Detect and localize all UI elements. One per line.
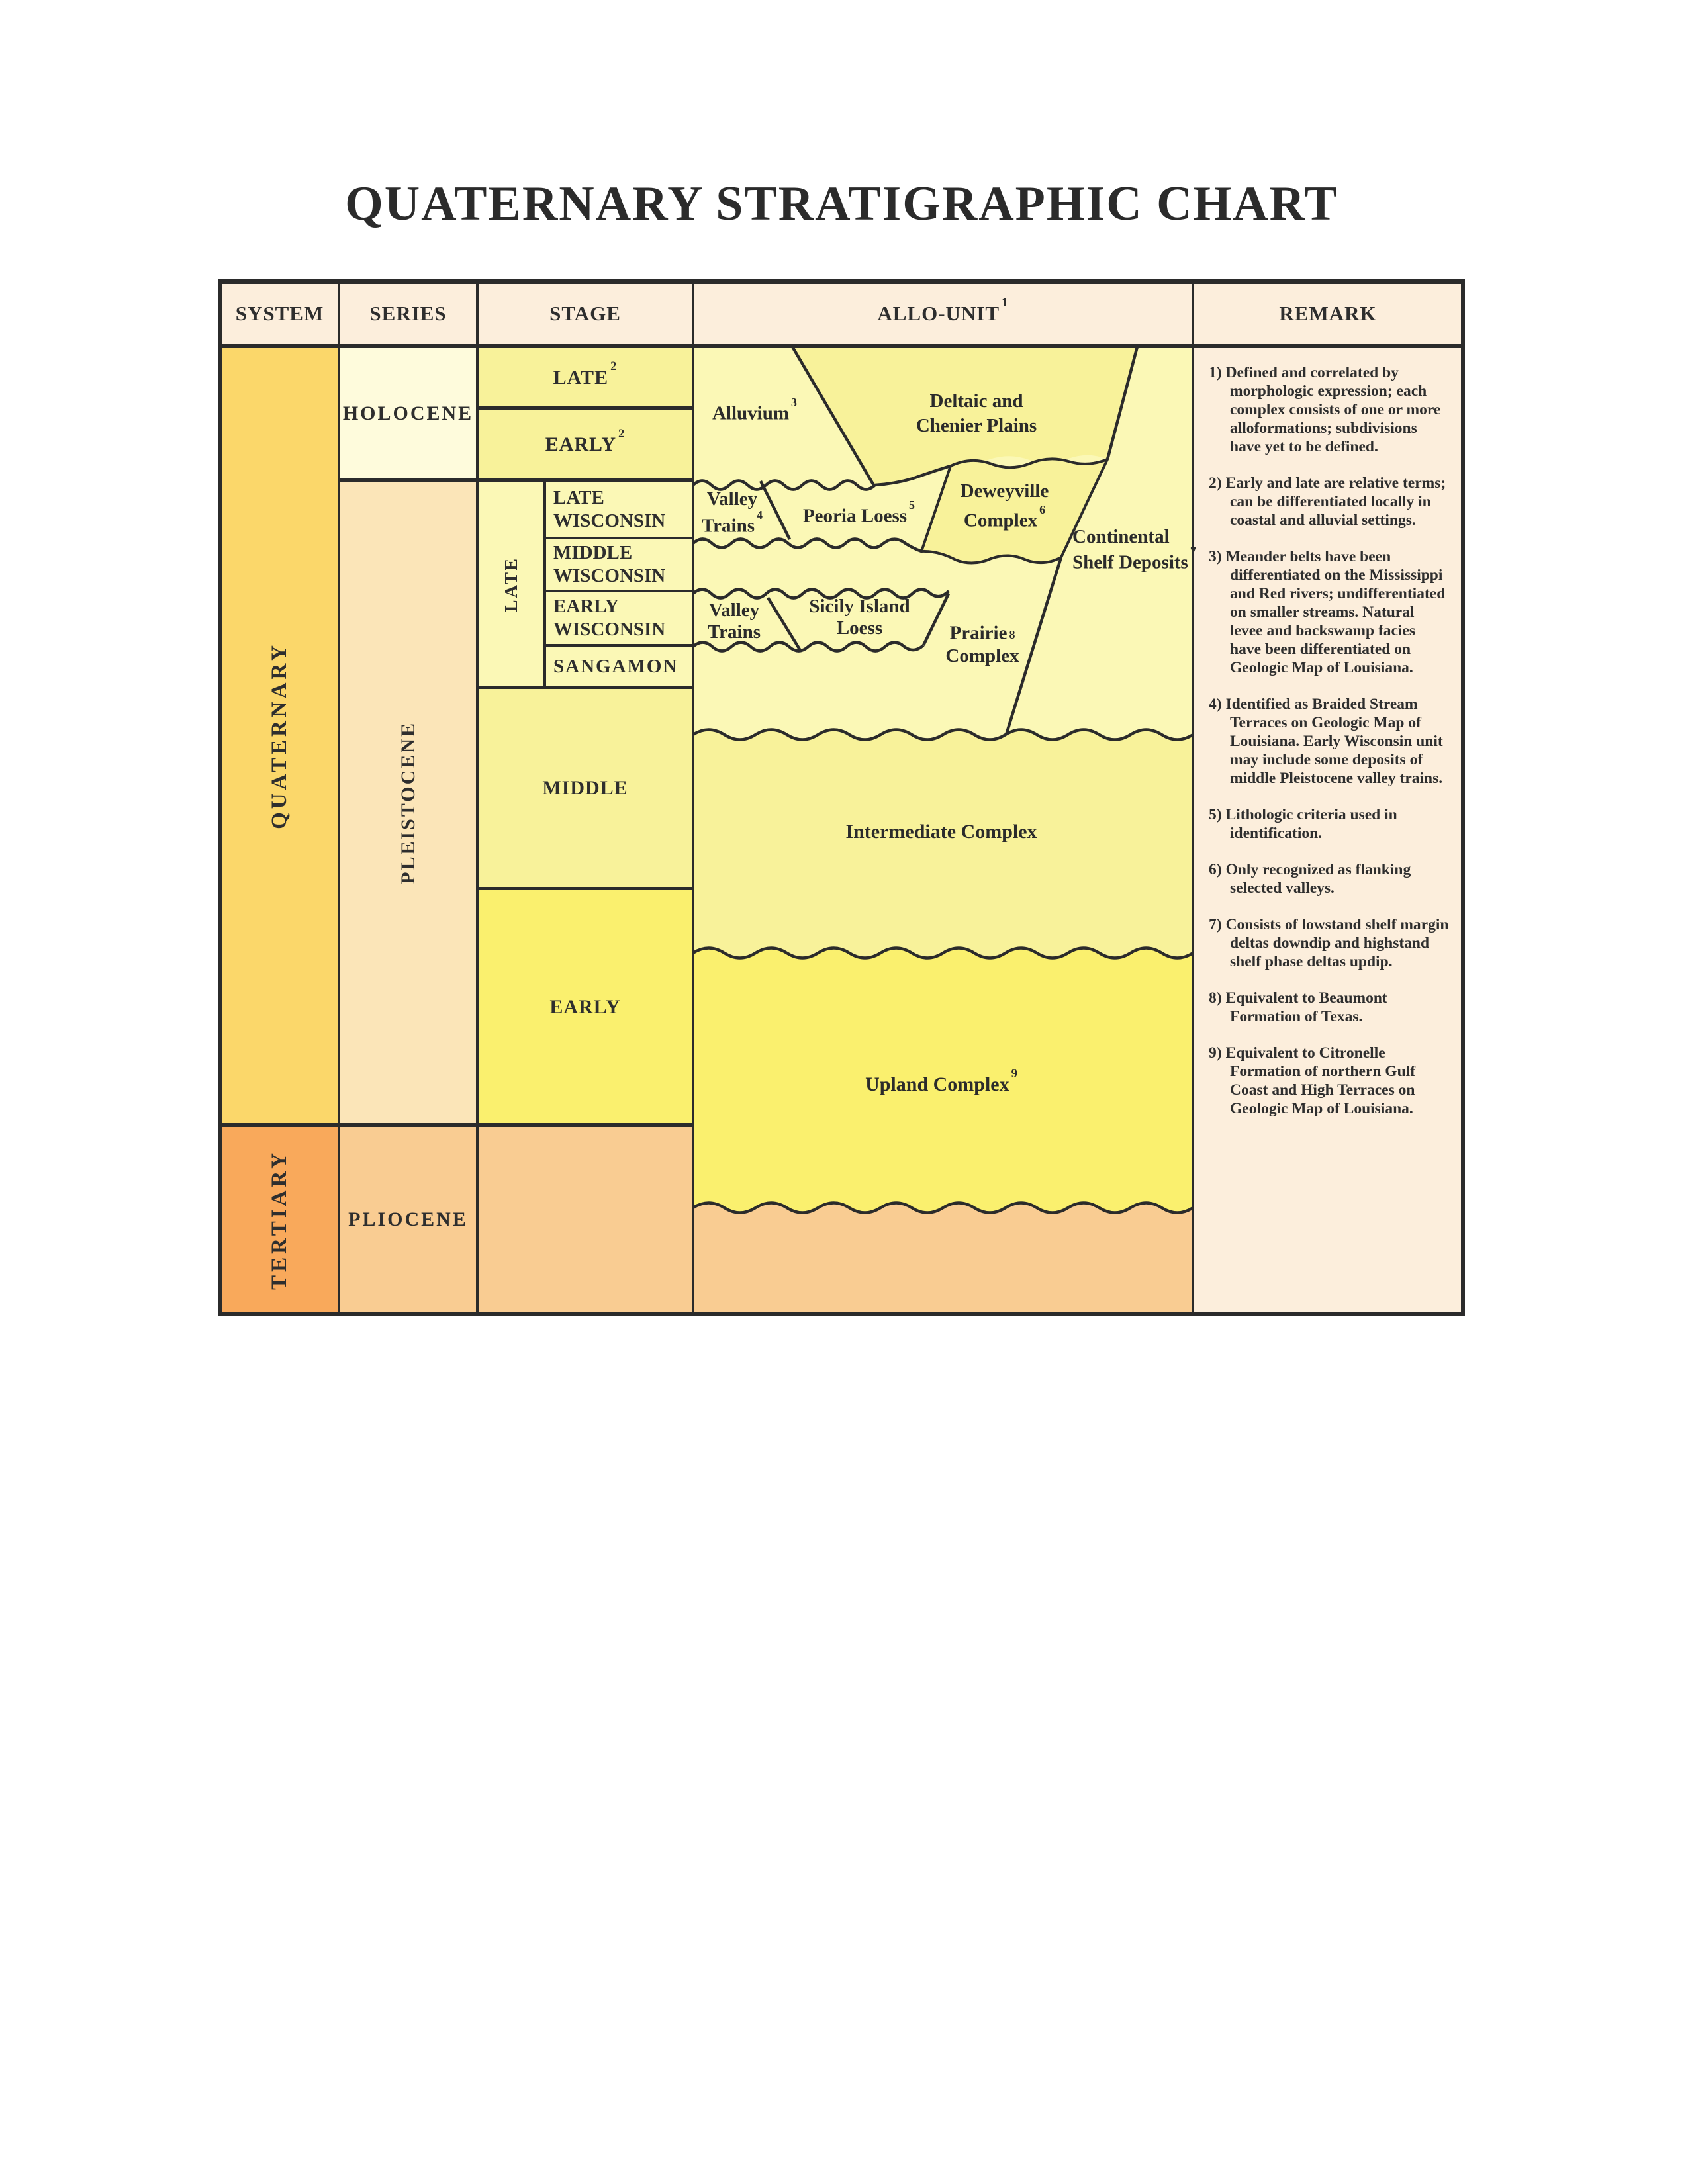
header-system: SYSTEM — [220, 281, 339, 346]
header-stage: STAGE — [477, 281, 693, 346]
stage-late-holocene-label: LATE2 — [553, 366, 618, 389]
stage-late-wisconsin-label: LATE WISCONSIN — [553, 486, 693, 533]
stage-allo-divider — [692, 281, 694, 1314]
remark-5: 5)Lithologic criteria used in identifica… — [1209, 805, 1450, 842]
stage-middle-wisconsin-label: MIDDLE WISCONSIN — [553, 541, 693, 588]
table-top-border — [218, 279, 1465, 284]
series-holocene-label: HOLOCENE — [343, 402, 473, 425]
holocene-pleistocene-divider — [339, 478, 693, 482]
stage-early-holocene-cell: EARLY2 — [477, 408, 693, 480]
stage-early-wisconsin-cell: EARLY WISCONSIN — [545, 591, 693, 645]
valley-trains-1-label: Valley Trains4 — [695, 488, 769, 537]
stage-late-holocene-cell: LATE2 — [477, 346, 693, 408]
alluvium-label: Alluvium3 — [695, 397, 814, 425]
system-tertiary-cell: TERTIARY — [220, 1125, 339, 1314]
remark-7: 7)Consists of lowstand shelf margin delt… — [1209, 915, 1450, 971]
system-series-divider — [338, 281, 340, 1314]
stage-sangamon-cell: SANGAMON — [545, 645, 693, 688]
remark-9: 9)Equivalent to Citronelle Formation of … — [1209, 1044, 1450, 1118]
stage-pliocene-empty-cell — [477, 1125, 693, 1314]
quaternary-stratigraphic-chart-page: QUATERNARY STRATIGRAPHIC CHART QUATERNAR… — [0, 0, 1688, 2184]
header-remark: REMARK — [1193, 281, 1463, 346]
series-pliocene-cell: PLIOCENE — [339, 1125, 477, 1314]
deweyville-complex-label: Deweyville Complex6 — [927, 479, 1082, 533]
stage-early-holocene-label: EARLY2 — [545, 433, 626, 456]
middle-early-divider — [477, 887, 693, 890]
remark-8: 8)Equivalent to Beaumont Formation of Te… — [1209, 989, 1450, 1026]
sangamon-middle-divider — [477, 686, 693, 689]
sicily-island-loess-label: Sicily Island Loess — [792, 596, 927, 639]
series-pleistocene-cell: PLEISTOCENE — [339, 480, 477, 1125]
remark-6: 6)Only recognized as flanking selected v… — [1209, 860, 1450, 897]
late-middle-wisconsin-divider — [545, 537, 693, 539]
pliocene-allo-region — [693, 1203, 1193, 1314]
stage-late-group-label: LATE — [501, 557, 522, 612]
remark-3: 3)Meander belts have been differentiated… — [1209, 547, 1450, 677]
stage-late-wisconsin-cell: LATE WISCONSIN — [545, 480, 693, 538]
late-subcolumn-divider — [543, 480, 546, 688]
deltaic-chenier-label: Deltaic and Chenier Plains — [897, 389, 1056, 438]
stage-early-wisconsin-label: EARLY WISCONSIN — [553, 595, 693, 641]
system-tertiary-label: TERTIARY — [267, 1150, 292, 1290]
remark-2: 2)Early and late are relative terms; can… — [1209, 474, 1450, 529]
valley-trains-2-label: Valley Trains — [695, 600, 773, 643]
series-pliocene-label: PLIOCENE — [348, 1208, 468, 1231]
intermediate-complex-region — [693, 730, 1193, 958]
series-stage-divider — [476, 281, 479, 1314]
allo-remark-divider — [1192, 281, 1194, 1314]
page-title: QUATERNARY STRATIGRAPHIC CHART — [220, 176, 1463, 232]
prairie-complex-label: Prairie8 Complex — [930, 617, 1035, 667]
remarks-column: 1)Defined and correlated by morphologic … — [1193, 346, 1463, 1314]
header-bottom-border — [220, 344, 1463, 348]
stage-middle-cell: MIDDLE — [477, 688, 693, 889]
series-pleistocene-label: PLEISTOCENE — [397, 721, 420, 884]
early-wisconsin-sangamon-divider — [545, 644, 693, 647]
stage-sangamon-label: SANGAMON — [553, 655, 678, 678]
table-left-border — [218, 279, 222, 1316]
system-quaternary-label: QUATERNARY — [267, 642, 292, 829]
header-allo-unit: ALLO-UNIT1 — [693, 281, 1193, 346]
stage-middle-label: MIDDLE — [542, 777, 628, 799]
late-early-holocene-divider — [477, 406, 693, 410]
continental-shelf-label: Continental Shelf Deposits7 — [1072, 527, 1205, 573]
middle-early-wisconsin-divider — [545, 590, 693, 592]
stage-late-group-cell: LATE — [477, 480, 545, 688]
intermediate-complex-label: Intermediate Complex — [776, 821, 1107, 843]
remark-1: 1)Defined and correlated by morphologic … — [1209, 363, 1450, 456]
series-holocene-cell: HOLOCENE — [339, 346, 477, 480]
stage-middle-wisconsin-cell: MIDDLE WISCONSIN — [545, 538, 693, 591]
system-quaternary-cell: QUATERNARY — [220, 346, 339, 1125]
header-series: SERIES — [339, 281, 477, 346]
stage-early-label: EARLY — [549, 996, 620, 1019]
upland-complex-label: Upland Complex9 — [776, 1069, 1107, 1096]
table-bottom-border — [218, 1312, 1465, 1316]
table-right-border — [1461, 279, 1465, 1316]
stage-early-cell: EARLY — [477, 889, 693, 1125]
peoria-loess-label: Peoria Loess5 — [788, 500, 930, 527]
quaternary-tertiary-divider — [220, 1123, 693, 1127]
remark-4: 4)Identified as Braided Stream Terraces … — [1209, 695, 1450, 788]
